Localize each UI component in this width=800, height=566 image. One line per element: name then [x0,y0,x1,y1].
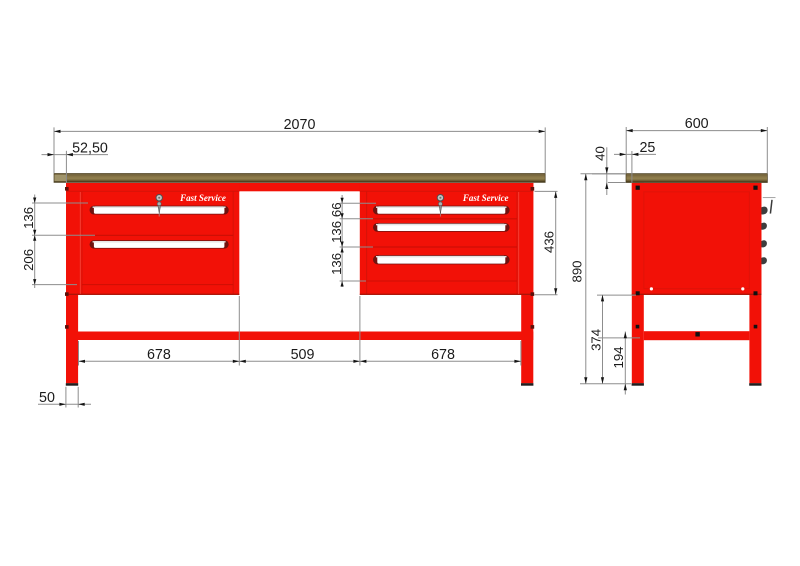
svg-text:678: 678 [431,347,455,363]
svg-text:206: 206 [21,249,36,271]
svg-text:136: 136 [329,253,344,275]
svg-text:2070: 2070 [284,117,316,133]
svg-text:25: 25 [639,140,655,156]
svg-text:52,50: 52,50 [72,140,108,156]
svg-text:Fast Service: Fast Service [179,193,226,203]
svg-text:374: 374 [589,329,604,351]
svg-text:436: 436 [542,231,557,253]
svg-text:136: 136 [329,221,344,243]
svg-text:40: 40 [592,146,607,161]
svg-text:Fast Service: Fast Service [462,193,509,203]
svg-text:194: 194 [611,346,626,368]
svg-text:136: 136 [21,207,36,229]
svg-text:678: 678 [147,347,171,363]
svg-text:50: 50 [39,390,55,406]
svg-text:600: 600 [685,116,709,132]
svg-text:509: 509 [291,347,315,363]
svg-text:890: 890 [570,260,585,282]
svg-text:66: 66 [329,202,344,217]
